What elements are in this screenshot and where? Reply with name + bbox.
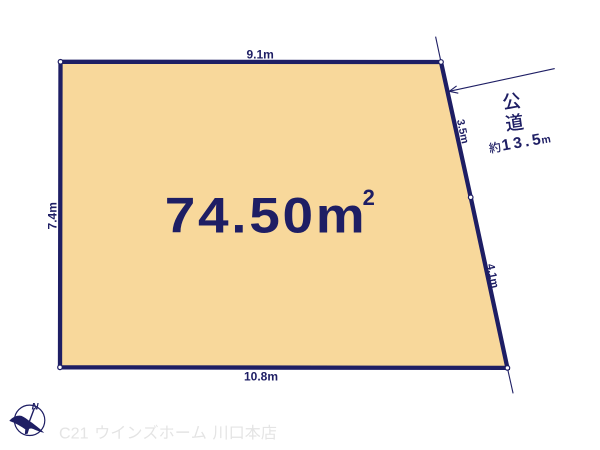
svg-text:10.8m: 10.8m [244,370,278,384]
svg-text:74.50m: 74.50m [165,189,368,244]
svg-text:2: 2 [363,185,375,210]
svg-text:C21: C21 [59,424,89,442]
svg-text:m: m [540,133,551,146]
svg-text:9.1m: 9.1m [247,47,274,61]
svg-text:N: N [32,402,40,413]
svg-text:7.4m: 7.4m [45,202,59,229]
svg-text:13.5: 13.5 [500,130,545,154]
